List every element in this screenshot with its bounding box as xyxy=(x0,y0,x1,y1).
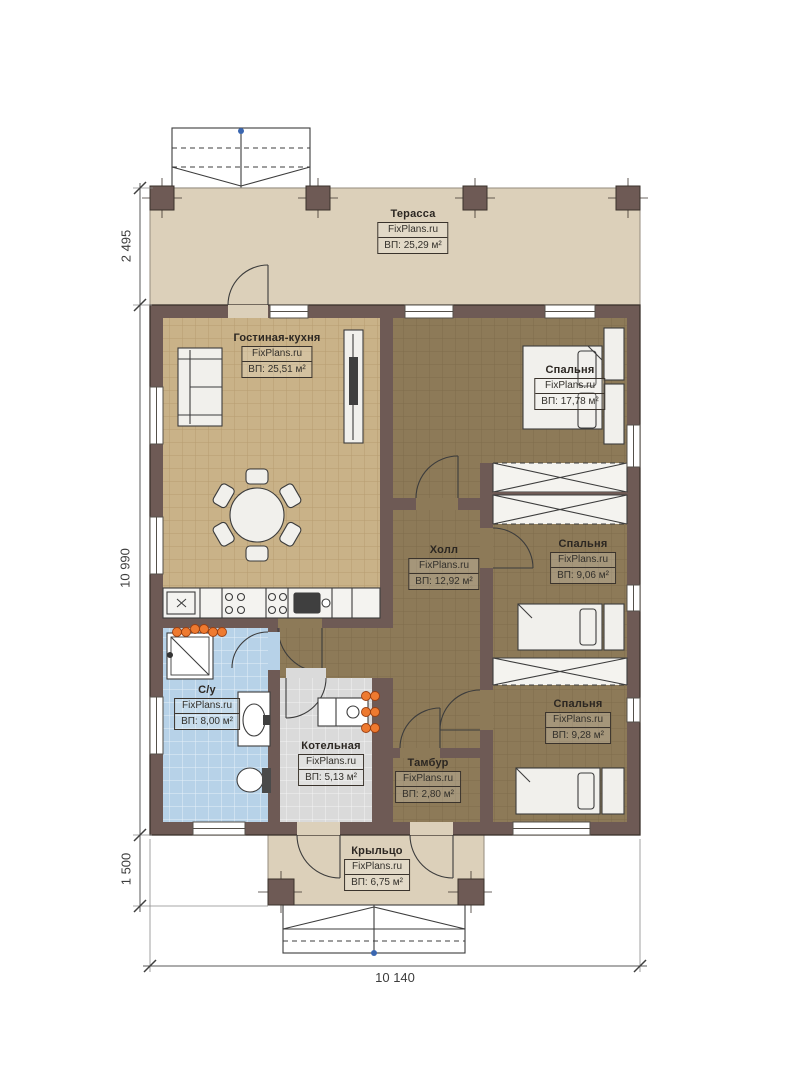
tambour-floor xyxy=(393,758,480,822)
porch-slab xyxy=(268,835,484,905)
bed-single-2 xyxy=(518,604,624,650)
boiler-unit xyxy=(318,698,368,726)
window-bottom-bedroom3 xyxy=(513,822,590,835)
hall-floor xyxy=(393,510,480,748)
window-left-living-1 xyxy=(150,387,163,444)
bedroom-1-floor-strip xyxy=(393,463,480,498)
window-top-bedroom1-a xyxy=(405,305,453,318)
dimension-left-middle: 10 990 xyxy=(118,548,133,588)
toilet xyxy=(237,768,271,793)
radiator-boiler-room xyxy=(362,692,380,733)
wardrobe-bedroom-1 xyxy=(493,463,627,492)
dimension-left-bottom: 1 500 xyxy=(119,853,134,886)
window-left-living-2 xyxy=(150,517,163,574)
exterior-stairs-top xyxy=(172,128,310,188)
window-right-bedroom2 xyxy=(627,585,640,611)
cabinet xyxy=(344,330,363,443)
dimension-left-top: 2 495 xyxy=(119,230,134,263)
floorplan-canvas: Терасса FixPlans.ru ВП: 25,29 м² Гостина… xyxy=(0,0,792,1080)
window-right-bedroom3 xyxy=(627,698,640,722)
window-bottom-bathroom xyxy=(193,822,245,835)
window-top-living xyxy=(270,305,308,318)
washbasin xyxy=(238,692,270,746)
porch-steps xyxy=(283,905,465,956)
shower xyxy=(167,633,213,679)
window-left-bathroom xyxy=(150,697,163,754)
window-right-bedroom1 xyxy=(627,425,640,467)
wardrobe-bedroom-2 xyxy=(493,495,627,524)
floorplan-drawing xyxy=(0,0,792,1080)
dimension-bottom-width: 10 140 xyxy=(375,970,415,985)
wardrobe-bedroom-3 xyxy=(493,658,627,685)
sofa xyxy=(178,348,222,426)
kitchen-counter xyxy=(163,588,380,618)
bed-single-3 xyxy=(516,768,624,814)
terrace-slab xyxy=(150,188,640,307)
window-top-bedroom1-b xyxy=(545,305,595,318)
